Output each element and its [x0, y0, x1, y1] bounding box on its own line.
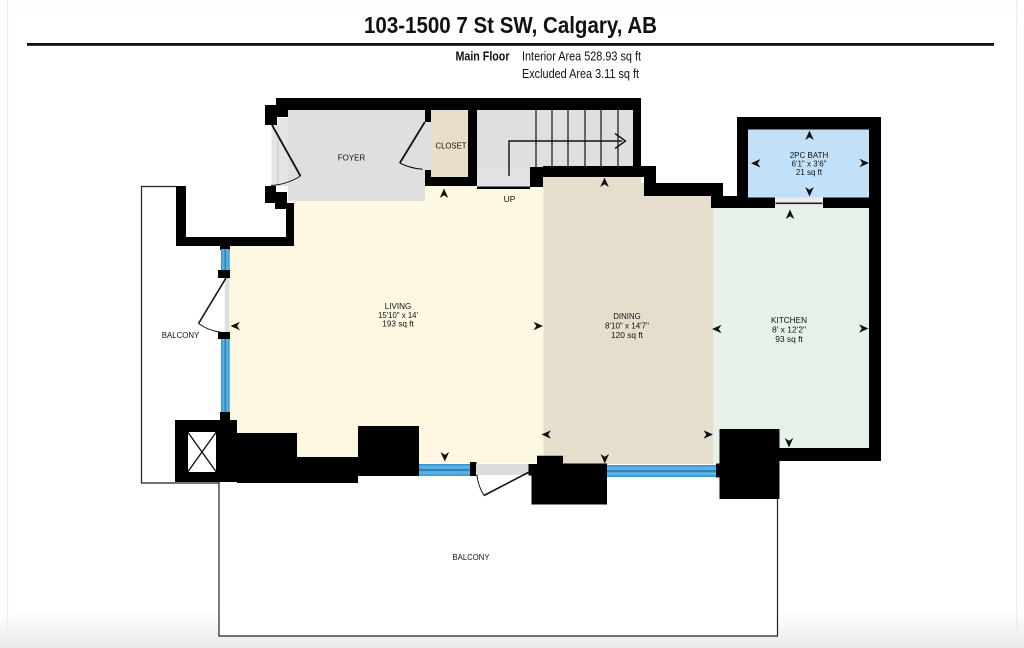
- svg-text:FOYER: FOYER: [338, 153, 366, 163]
- svg-text:21 sq ft: 21 sq ft: [796, 168, 823, 177]
- svg-text:8' x 12'2": 8' x 12'2": [772, 325, 806, 335]
- svg-text:193 sq ft: 193 sq ft: [382, 319, 414, 329]
- svg-text:DINING: DINING: [613, 311, 641, 321]
- svg-text:Excluded Area 3.11 sq ft: Excluded Area 3.11 sq ft: [522, 67, 639, 81]
- svg-text:KITCHEN: KITCHEN: [771, 315, 807, 325]
- svg-text:UP: UP: [504, 194, 516, 204]
- svg-text:8'10" x 14'7": 8'10" x 14'7": [605, 321, 649, 331]
- svg-text:BALCONY: BALCONY: [162, 331, 200, 340]
- svg-text:93 sq ft: 93 sq ft: [775, 334, 803, 344]
- svg-text:103-1500 7 St SW, Calgary, AB: 103-1500 7 St SW, Calgary, AB: [364, 12, 657, 38]
- svg-text:Interior Area 528.93 sq ft: Interior Area 528.93 sq ft: [522, 50, 641, 64]
- svg-text:CLOSET: CLOSET: [436, 141, 467, 151]
- svg-text:120 sq ft: 120 sq ft: [611, 330, 644, 340]
- svg-text:BALCONY: BALCONY: [453, 553, 491, 562]
- svg-text:Main Floor: Main Floor: [456, 50, 510, 64]
